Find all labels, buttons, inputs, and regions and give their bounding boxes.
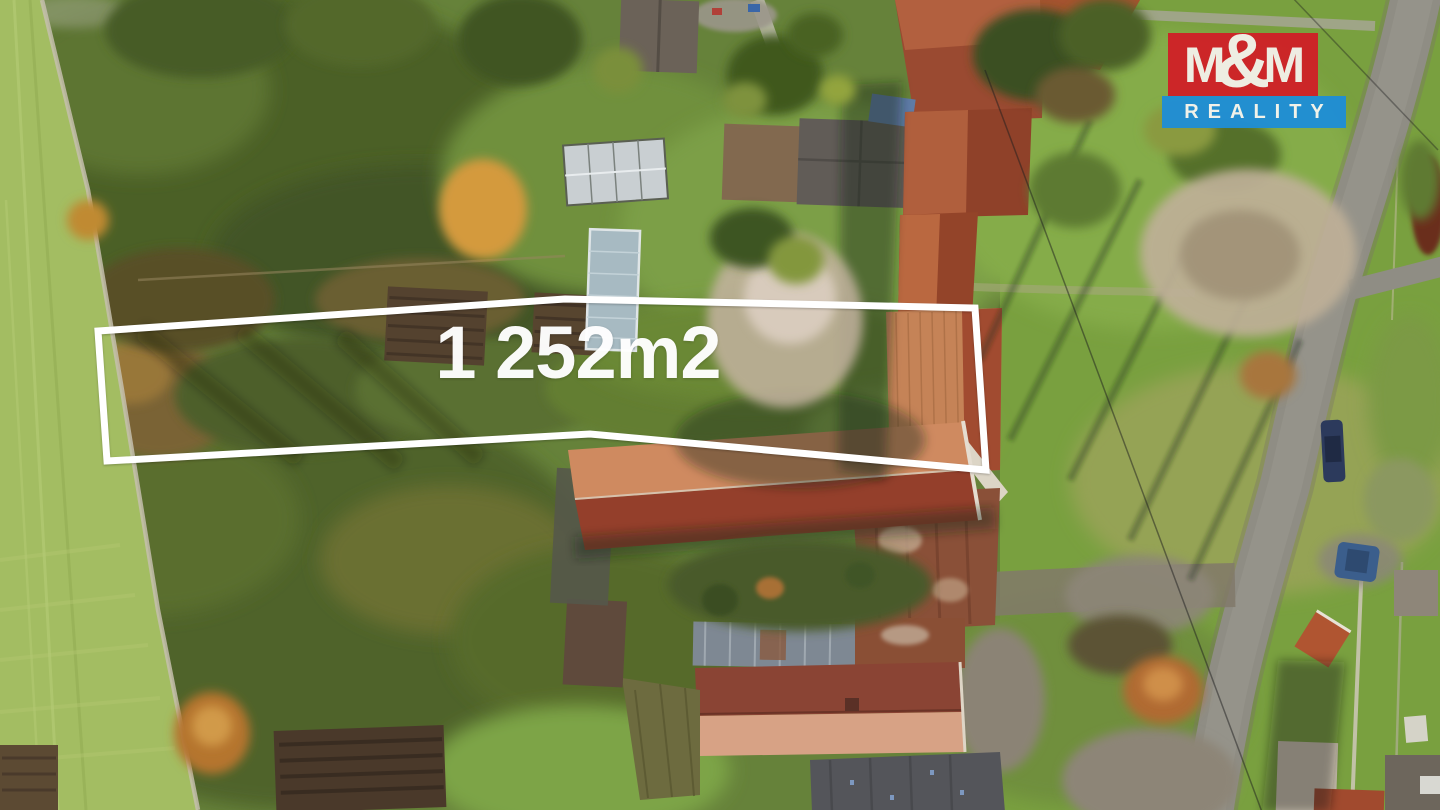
area-label: 1 252m2 xyxy=(428,316,728,390)
logo-ampersand: & xyxy=(1216,33,1271,96)
logo-blue-box: REALITY xyxy=(1162,96,1346,128)
logo-red-box: M & M xyxy=(1168,33,1318,96)
aerial-photo: 1 252m2 M & M REALITY xyxy=(0,0,1440,810)
mm-reality-logo: M & M REALITY xyxy=(1162,33,1346,128)
